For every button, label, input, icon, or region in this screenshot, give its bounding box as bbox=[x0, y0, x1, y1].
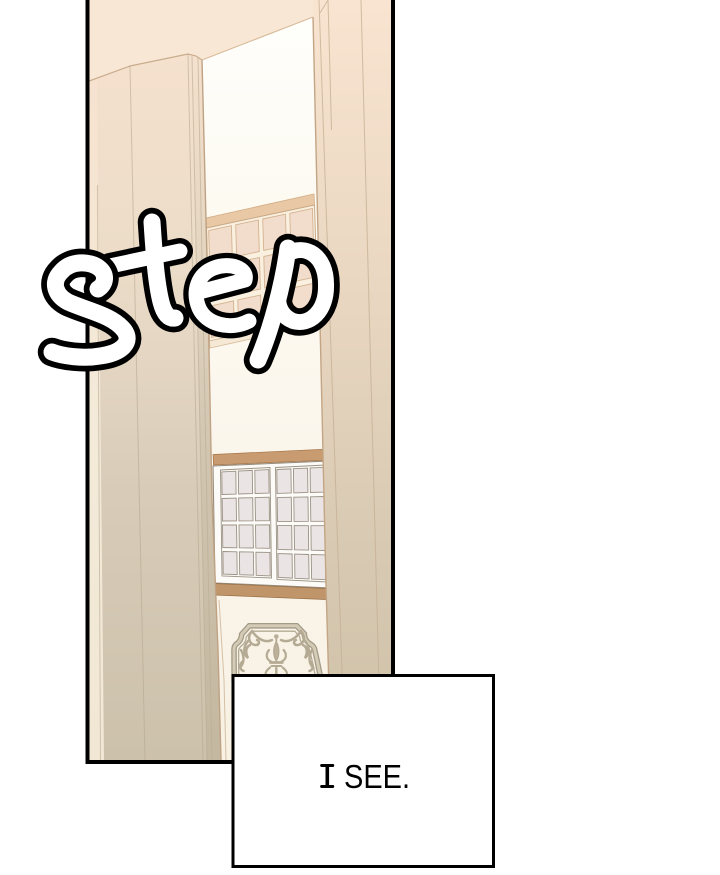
svg-text:SEE.: SEE. bbox=[344, 758, 410, 795]
